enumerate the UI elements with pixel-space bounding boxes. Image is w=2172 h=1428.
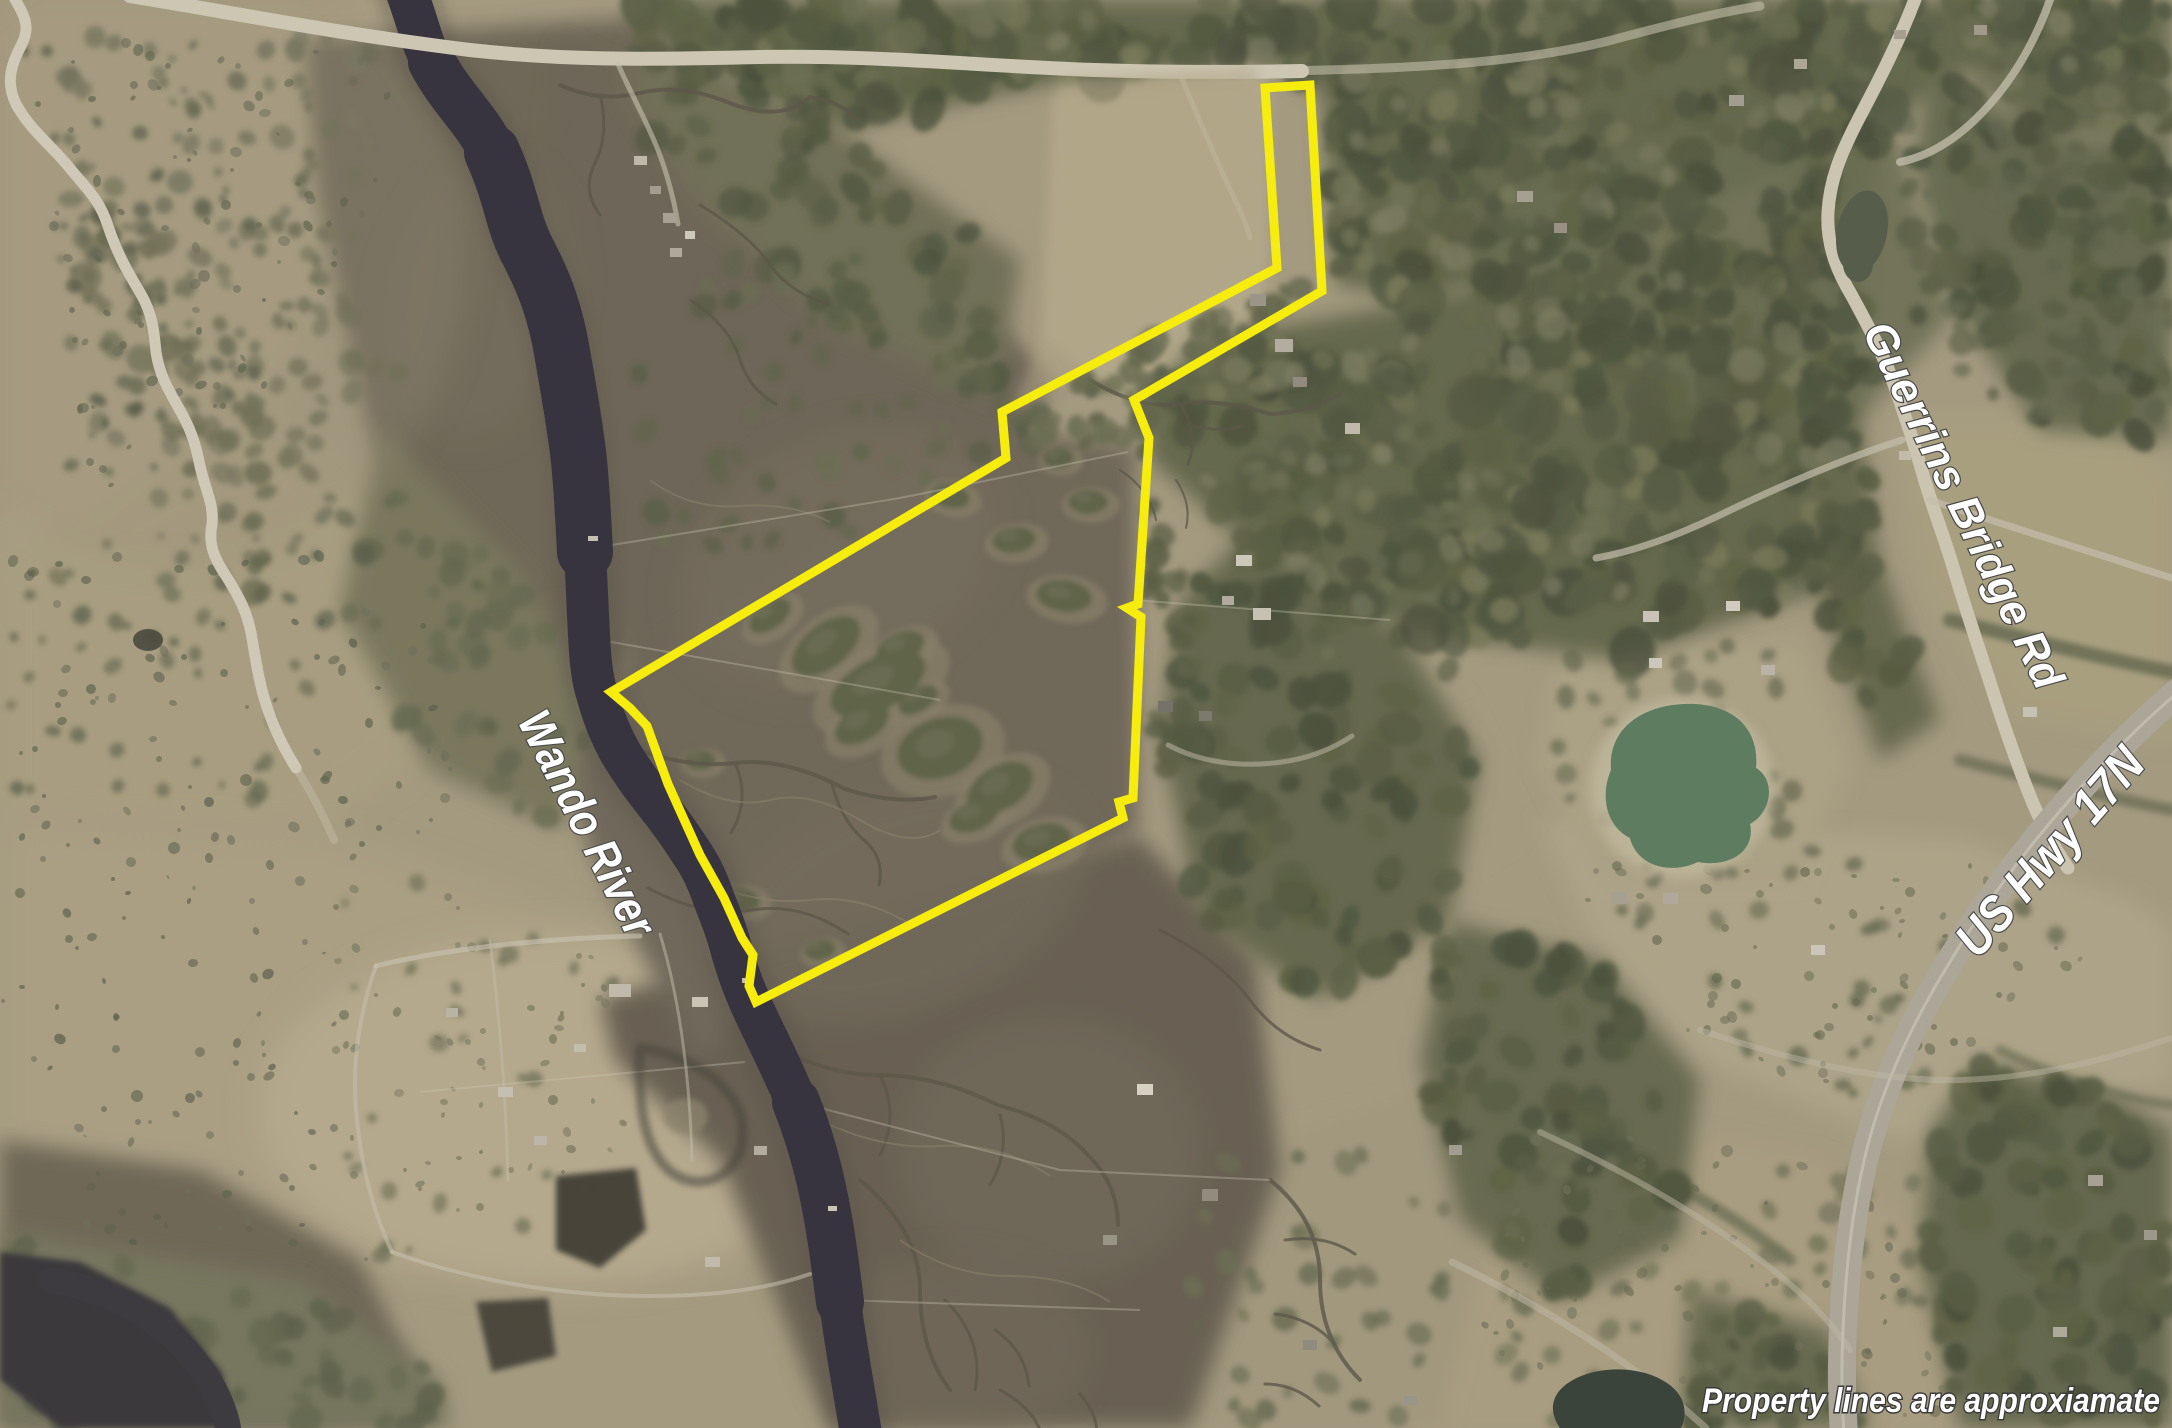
svg-text:Property lines are approxiamat: Property lines are approxiamate [1702, 1382, 2160, 1420]
